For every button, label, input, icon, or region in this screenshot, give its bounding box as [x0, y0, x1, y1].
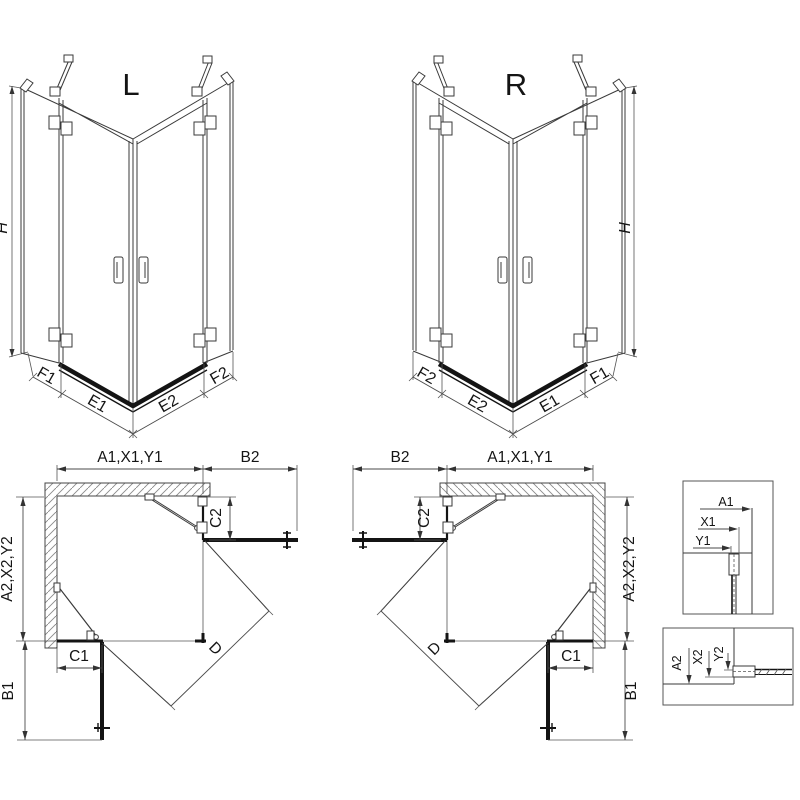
- shower-enclosure-diagram: L H F1 E1 E2 F2 R H F2 E2 E1 F1 A1,X1,Y1…: [0, 0, 800, 800]
- detail-dim-label-a1: A1: [718, 495, 733, 509]
- detail-dim-label-x1: X1: [700, 515, 715, 529]
- detail-dim-label-y1: Y1: [695, 534, 710, 548]
- dim-label-a1x1y1-plan-left: A1,X1,Y1: [97, 449, 163, 466]
- dim-label-c2-plan-right: C2: [416, 508, 433, 528]
- dim-label-height-left: H: [0, 222, 11, 234]
- view-label-left: L: [122, 67, 139, 102]
- dim-label-a2x2y2-plan-left: A2,X2,Y2: [0, 536, 16, 602]
- plan-view-right-geometry: [352, 465, 634, 740]
- detail-dim-label-a2: A2: [670, 655, 684, 670]
- detail-dim-label-x2: X2: [691, 649, 705, 664]
- front-view-left: L H F1 E1 E2 F2: [0, 55, 237, 438]
- dim-label-f1-left: F1: [34, 364, 59, 388]
- dim-label-f2-left: F2: [207, 364, 232, 388]
- dim-label-a1x1y1-plan-right: A1,X1,Y1: [487, 449, 553, 466]
- dim-label-c2-plan-left: C2: [208, 508, 225, 528]
- dim-label-e2-left: E2: [156, 392, 182, 417]
- dim-label-height-right: H: [617, 222, 634, 234]
- dim-label-c1-plan-right: C1: [561, 648, 581, 665]
- detail-view-top: A1 X1 Y1: [683, 481, 773, 614]
- dim-label-f2-right: F2: [414, 364, 439, 388]
- technical-drawing-page: L H F1 E1 E2 F2 R H F2 E2 E1 F1 A1,X1,Y1…: [0, 0, 800, 800]
- dim-label-b1-plan-left: B1: [0, 682, 17, 701]
- dim-label-f1-right: F1: [587, 364, 612, 388]
- dim-label-e1-left: E1: [85, 392, 111, 417]
- dim-label-e2-right: E2: [465, 392, 491, 417]
- dim-label-b2-plan-left: B2: [241, 449, 260, 466]
- plan-view-left-geometry: [16, 465, 298, 740]
- dim-label-a2x2y2-plan-right: A2,X2,Y2: [621, 536, 638, 602]
- plan-view-right: A1,X1,Y1 B2 C2 A2,X2,Y2 C1 B1 D: [352, 449, 640, 740]
- view-label-right: R: [505, 67, 527, 102]
- dim-label-c1-plan-left: C1: [69, 648, 89, 665]
- detail-view-bottom: A2 X2 Y2: [663, 628, 793, 705]
- dim-label-b1-plan-right: B1: [623, 682, 640, 701]
- dim-label-b2-plan-right: B2: [391, 449, 410, 466]
- front-view-right: R H F2 E2 E1 F1: [409, 55, 637, 438]
- detail-dim-label-y2: Y2: [712, 646, 726, 661]
- plan-view-left: A1,X1,Y1 B2 C2 A2,X2,Y2 C1 B1 D: [0, 449, 298, 740]
